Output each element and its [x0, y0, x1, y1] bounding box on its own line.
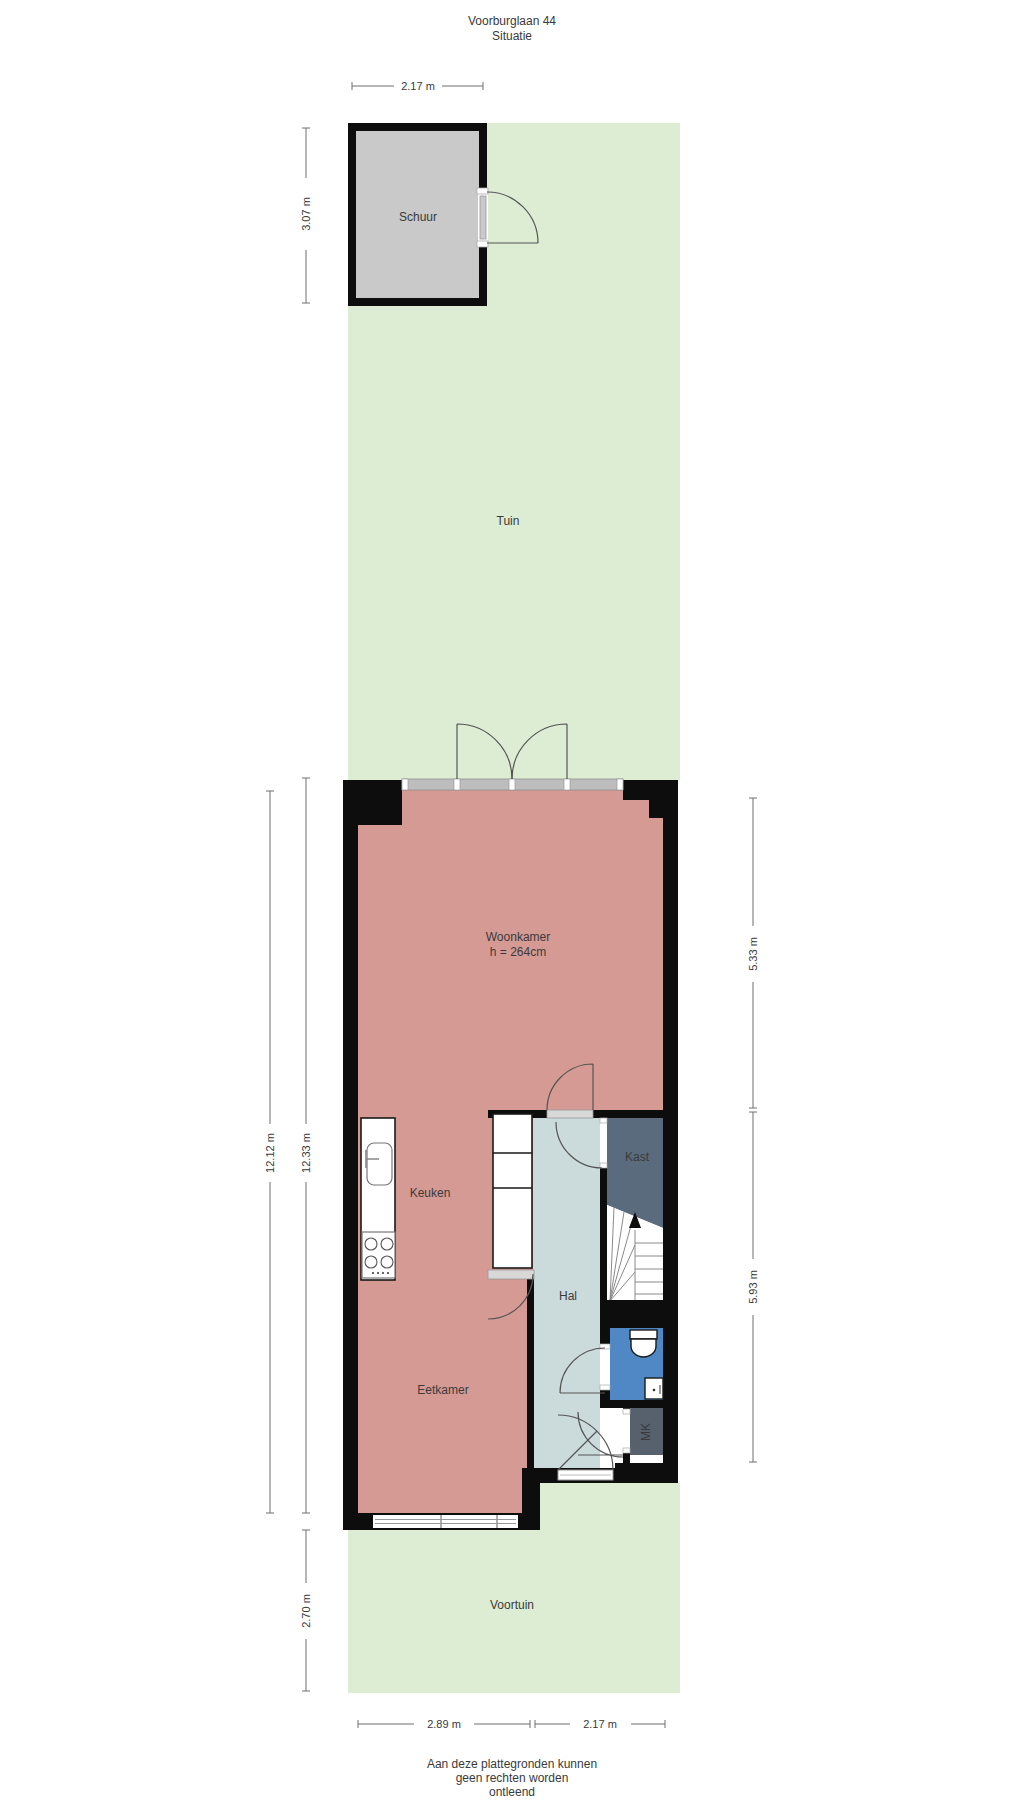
- floor-plan-page: Voorburglaan 44 Situatie: [0, 0, 1024, 1820]
- label-kast: Kast: [625, 1150, 650, 1164]
- dim-schuur-depth: 3.07 m: [300, 128, 312, 303]
- door-frame-mark: [623, 1409, 630, 1414]
- label-hal: Hal: [559, 1289, 577, 1303]
- door-frame-mark: [454, 779, 460, 790]
- svg-text:2.70 m: 2.70 m: [300, 1594, 312, 1628]
- disclaimer-line1: Aan deze plattegronden kunnen: [427, 1757, 597, 1771]
- dim-woonkamer-depth: 5.33 m: [747, 798, 759, 1108]
- toilet-tank-icon: [630, 1330, 657, 1339]
- label-voortuin: Voortuin: [490, 1598, 534, 1612]
- door-frame-mark: [564, 779, 570, 790]
- door-frame-mark: [600, 1385, 610, 1390]
- svg-text:12.33 m: 12.33 m: [300, 1133, 312, 1173]
- door-frame-mark: [509, 779, 515, 790]
- label-woonkamer: Woonkamer: [486, 930, 550, 944]
- toilet-bowl-icon: [631, 1339, 656, 1357]
- dim-plot-depth-inner: 12.33 m: [300, 778, 312, 1513]
- dim-house-width-right: 2.17 m: [535, 1718, 665, 1730]
- label-eetkamer: Eetkamer: [417, 1383, 468, 1397]
- svg-text:5.93 m: 5.93 m: [747, 1270, 759, 1304]
- hal-door-band: [547, 1110, 593, 1118]
- schuur-door-frame: [480, 196, 486, 239]
- door-frame-mark: [617, 779, 623, 790]
- svg-text:3.07 m: 3.07 m: [300, 197, 312, 231]
- label-tuin: Tuin: [497, 514, 520, 528]
- svg-text:2.89 m: 2.89 m: [427, 1718, 461, 1730]
- cabinet-column: [493, 1114, 532, 1268]
- door-frame-mark: [600, 1163, 607, 1168]
- svg-text:2.17 m: 2.17 m: [401, 80, 435, 92]
- svg-text:5.33 m: 5.33 m: [747, 937, 759, 971]
- label-schuur: Schuur: [399, 210, 437, 224]
- label-woonkamer-height: h = 264cm: [490, 945, 546, 959]
- door-frame-mark: [600, 1118, 607, 1123]
- svg-text:12.12 m: 12.12 m: [264, 1133, 276, 1173]
- svg-text:2.17 m: 2.17 m: [583, 1718, 617, 1730]
- door-frame-mark: [477, 241, 488, 247]
- dim-schuur-width: 2.17 m: [352, 80, 483, 92]
- door-frame-mark: [402, 779, 408, 790]
- label-mk: MK: [639, 1423, 653, 1441]
- page-title-line2: Situatie: [492, 29, 532, 43]
- door-frame-mark: [477, 188, 488, 194]
- basin-drain: [653, 1389, 656, 1392]
- label-keuken: Keuken: [410, 1186, 451, 1200]
- dim-plot-depth-outer: 12.12 m: [264, 791, 276, 1513]
- dim-hal-depth: 5.93 m: [747, 1112, 759, 1462]
- dim-house-width-left: 2.89 m: [358, 1718, 530, 1730]
- floor-plan-svg: Voorburglaan 44 Situatie: [0, 0, 1024, 1820]
- door-frame-mark: [623, 1448, 630, 1453]
- page-title-line1: Voorburglaan 44: [468, 14, 556, 28]
- eetkamer-door-band: [488, 1270, 534, 1279]
- dim-voortuin-depth: 2.70 m: [300, 1530, 312, 1691]
- kitchen-sink: [367, 1143, 392, 1185]
- disclaimer-line2: geen rechten worden: [456, 1771, 569, 1785]
- disclaimer-line3: ontleend: [489, 1785, 535, 1799]
